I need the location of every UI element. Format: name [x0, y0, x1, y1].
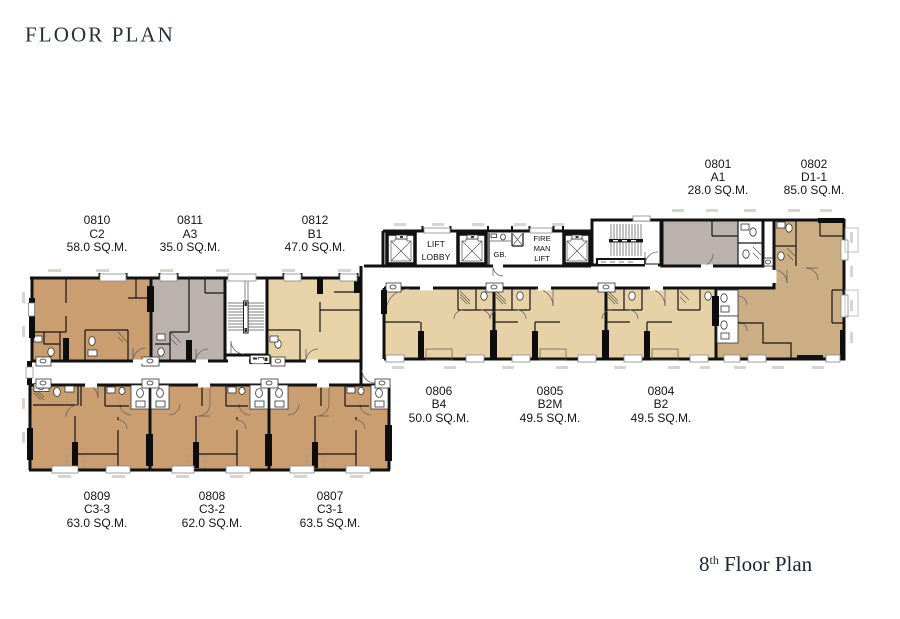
svg-text:LIFT: LIFT — [427, 239, 445, 249]
svg-text:LIFT: LIFT — [534, 254, 550, 263]
svg-text:0811: 0811 — [177, 213, 203, 227]
svg-text:0807: 0807 — [317, 489, 344, 503]
svg-text:28.0 SQ.M.: 28.0 SQ.M. — [688, 183, 749, 197]
svg-text:A3: A3 — [183, 227, 198, 241]
svg-text:C3-3: C3-3 — [84, 502, 110, 516]
svg-text:0804: 0804 — [648, 384, 675, 398]
svg-text:0810: 0810 — [84, 213, 111, 227]
svg-text:0806: 0806 — [426, 384, 453, 398]
svg-text:63.5 SQ.M.: 63.5 SQ.M. — [300, 516, 361, 530]
svg-text:MAN: MAN — [534, 244, 551, 253]
svg-text:A1: A1 — [711, 170, 726, 184]
svg-text:LOBBY: LOBBY — [422, 252, 451, 262]
svg-text:C2: C2 — [89, 227, 105, 241]
svg-text:B2M: B2M — [538, 397, 563, 411]
svg-text:0809: 0809 — [84, 489, 111, 503]
svg-text:B1: B1 — [308, 227, 323, 241]
svg-text:47.0 SQ.M.: 47.0 SQ.M. — [285, 240, 346, 254]
svg-text:B2: B2 — [654, 397, 669, 411]
svg-text:0801: 0801 — [705, 157, 732, 171]
svg-text:62.0 SQ.M.: 62.0 SQ.M. — [182, 516, 243, 530]
svg-text:FIRE: FIRE — [533, 234, 550, 243]
svg-text:63.0 SQ.M.: 63.0 SQ.M. — [67, 516, 128, 530]
svg-text:58.0 SQ.M.: 58.0 SQ.M. — [67, 240, 128, 254]
svg-text:C3-2: C3-2 — [199, 502, 225, 516]
svg-text:0805: 0805 — [537, 384, 564, 398]
svg-text:B4: B4 — [432, 397, 447, 411]
svg-text:C3-1: C3-1 — [317, 502, 343, 516]
svg-text:0802: 0802 — [801, 157, 828, 171]
svg-text:0808: 0808 — [199, 489, 226, 503]
svg-text:50.0 SQ.M.: 50.0 SQ.M. — [409, 411, 470, 425]
svg-text:FLOOR PLAN: FLOOR PLAN — [25, 23, 175, 47]
svg-text:35.0 SQ.M.: 35.0 SQ.M. — [160, 240, 221, 254]
svg-text:D1-1: D1-1 — [801, 170, 827, 184]
svg-text:49.5 SQ.M.: 49.5 SQ.M. — [520, 411, 581, 425]
svg-text:0812: 0812 — [302, 213, 329, 227]
svg-text:GB.: GB. — [493, 250, 506, 259]
svg-text:49.5 SQ.M.: 49.5 SQ.M. — [631, 411, 692, 425]
svg-text:85.0 SQ.M.: 85.0 SQ.M. — [784, 183, 845, 197]
